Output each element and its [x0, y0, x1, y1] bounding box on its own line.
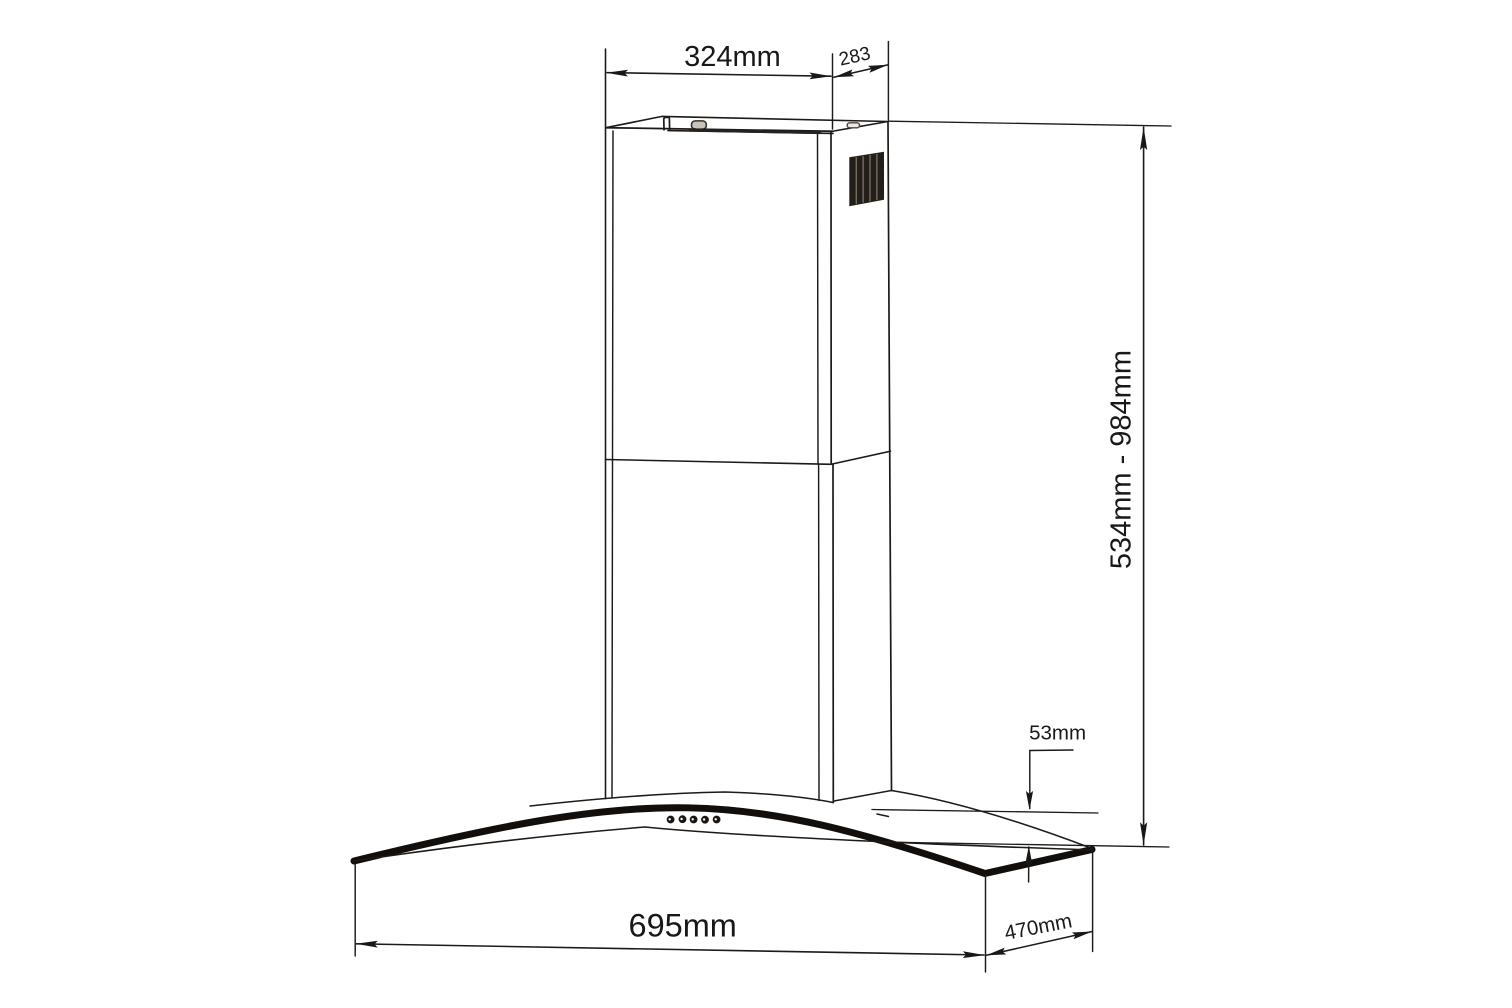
svg-text:53mm: 53mm	[1029, 722, 1086, 745]
svg-text:695mm: 695mm	[629, 907, 737, 943]
svg-text:324mm: 324mm	[684, 41, 781, 73]
svg-text:534mm - 984mm: 534mm - 984mm	[1106, 350, 1138, 569]
